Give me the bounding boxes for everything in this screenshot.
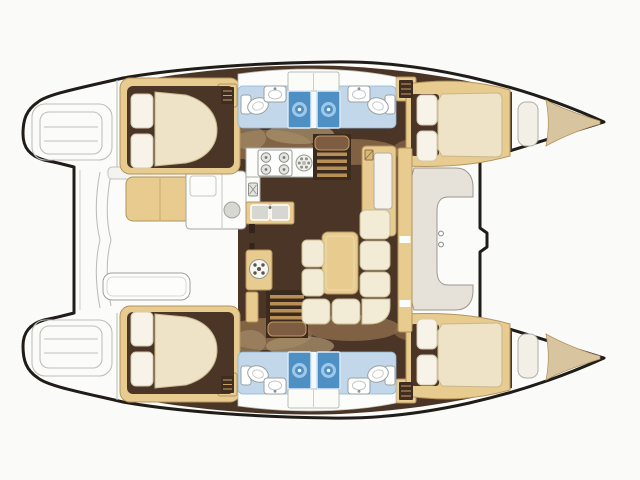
head-compartments	[238, 69, 396, 128]
stair-landing	[268, 322, 306, 336]
round-burner-icon	[296, 155, 312, 171]
faucet-icon	[269, 206, 272, 209]
sofa-cushion	[360, 210, 390, 239]
pillow	[417, 95, 437, 125]
pillow	[417, 131, 437, 161]
sofa-cushion	[332, 299, 360, 324]
sofa-cushion	[302, 299, 330, 324]
galley-sink-icon	[271, 205, 289, 220]
pillow	[131, 134, 153, 168]
galley-sink-icon	[251, 205, 269, 220]
cockpit-sink-icon	[224, 202, 240, 218]
companionway-stairs-port	[313, 134, 351, 180]
catamaran-floor-plan	[0, 0, 640, 480]
washbasin-icon	[264, 86, 286, 102]
sofa-cushion	[360, 241, 390, 270]
bulkhead-door-gap	[400, 236, 411, 243]
louver-vent-icon	[399, 80, 413, 98]
oven-icon	[249, 183, 258, 196]
handle-icon	[439, 231, 444, 236]
bulkhead-door-gap	[400, 300, 411, 307]
nav-panel	[374, 153, 392, 209]
sofa-back-cushion	[302, 269, 324, 296]
floor-plan-canvas	[0, 0, 640, 480]
pillow	[131, 94, 153, 128]
washbasin-icon	[348, 86, 370, 102]
cabinet-strip	[246, 292, 258, 322]
stair-landing	[315, 136, 349, 150]
door-latch	[249, 224, 255, 233]
bow-seat	[518, 102, 538, 146]
louver-vent-icon	[221, 87, 234, 104]
handle-icon	[439, 242, 444, 247]
dinette-table	[322, 232, 358, 294]
forward-berth-mattress	[438, 93, 502, 157]
sofa-back-cushion	[302, 240, 324, 267]
shower-drain-dot	[327, 108, 331, 112]
shower-drain-dot	[298, 108, 302, 112]
sofa-cushion	[360, 272, 390, 297]
bathroom-divider	[311, 86, 316, 128]
